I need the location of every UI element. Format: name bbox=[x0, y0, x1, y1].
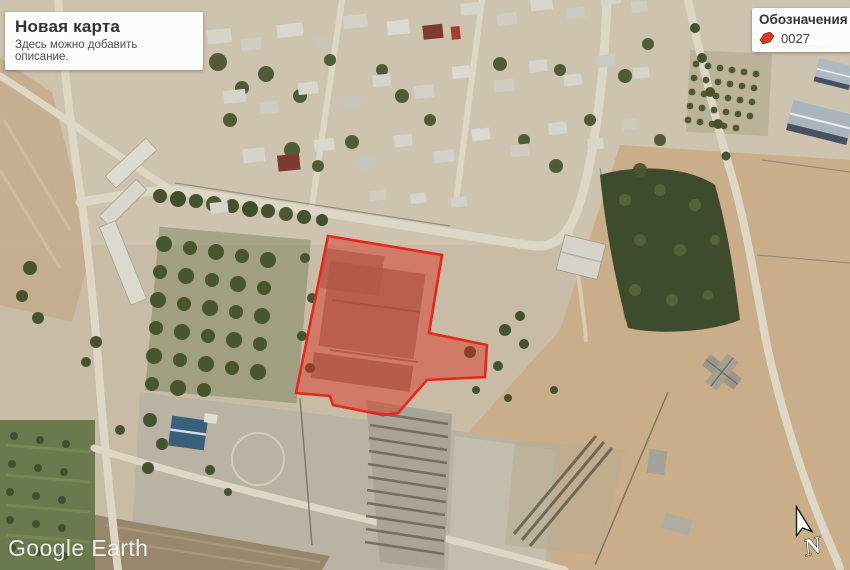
north-label: N bbox=[800, 532, 826, 562]
legend-item-0027[interactable]: 0027 bbox=[759, 31, 843, 46]
north-arrow[interactable]: N bbox=[778, 498, 838, 568]
north-arrow-pointer bbox=[789, 505, 812, 536]
placemark-polygon-0027[interactable] bbox=[296, 236, 487, 415]
red-polygon-icon bbox=[759, 32, 775, 45]
map-title: Новая карта bbox=[15, 16, 193, 37]
legend-panel[interactable]: Обозначения 0027 bbox=[752, 8, 850, 52]
google-earth-watermark: Google Earth bbox=[8, 535, 148, 562]
legend-title: Обозначения bbox=[759, 12, 843, 27]
legend-item-label: 0027 bbox=[781, 31, 810, 46]
placemark-layer bbox=[0, 0, 850, 570]
map-description: Здесь можно добавить описание. bbox=[15, 39, 193, 63]
map-title-panel[interactable]: Новая карта Здесь можно добавить описани… bbox=[5, 12, 203, 70]
google-earth-viewport[interactable]: Новая карта Здесь можно добавить описани… bbox=[0, 0, 850, 570]
